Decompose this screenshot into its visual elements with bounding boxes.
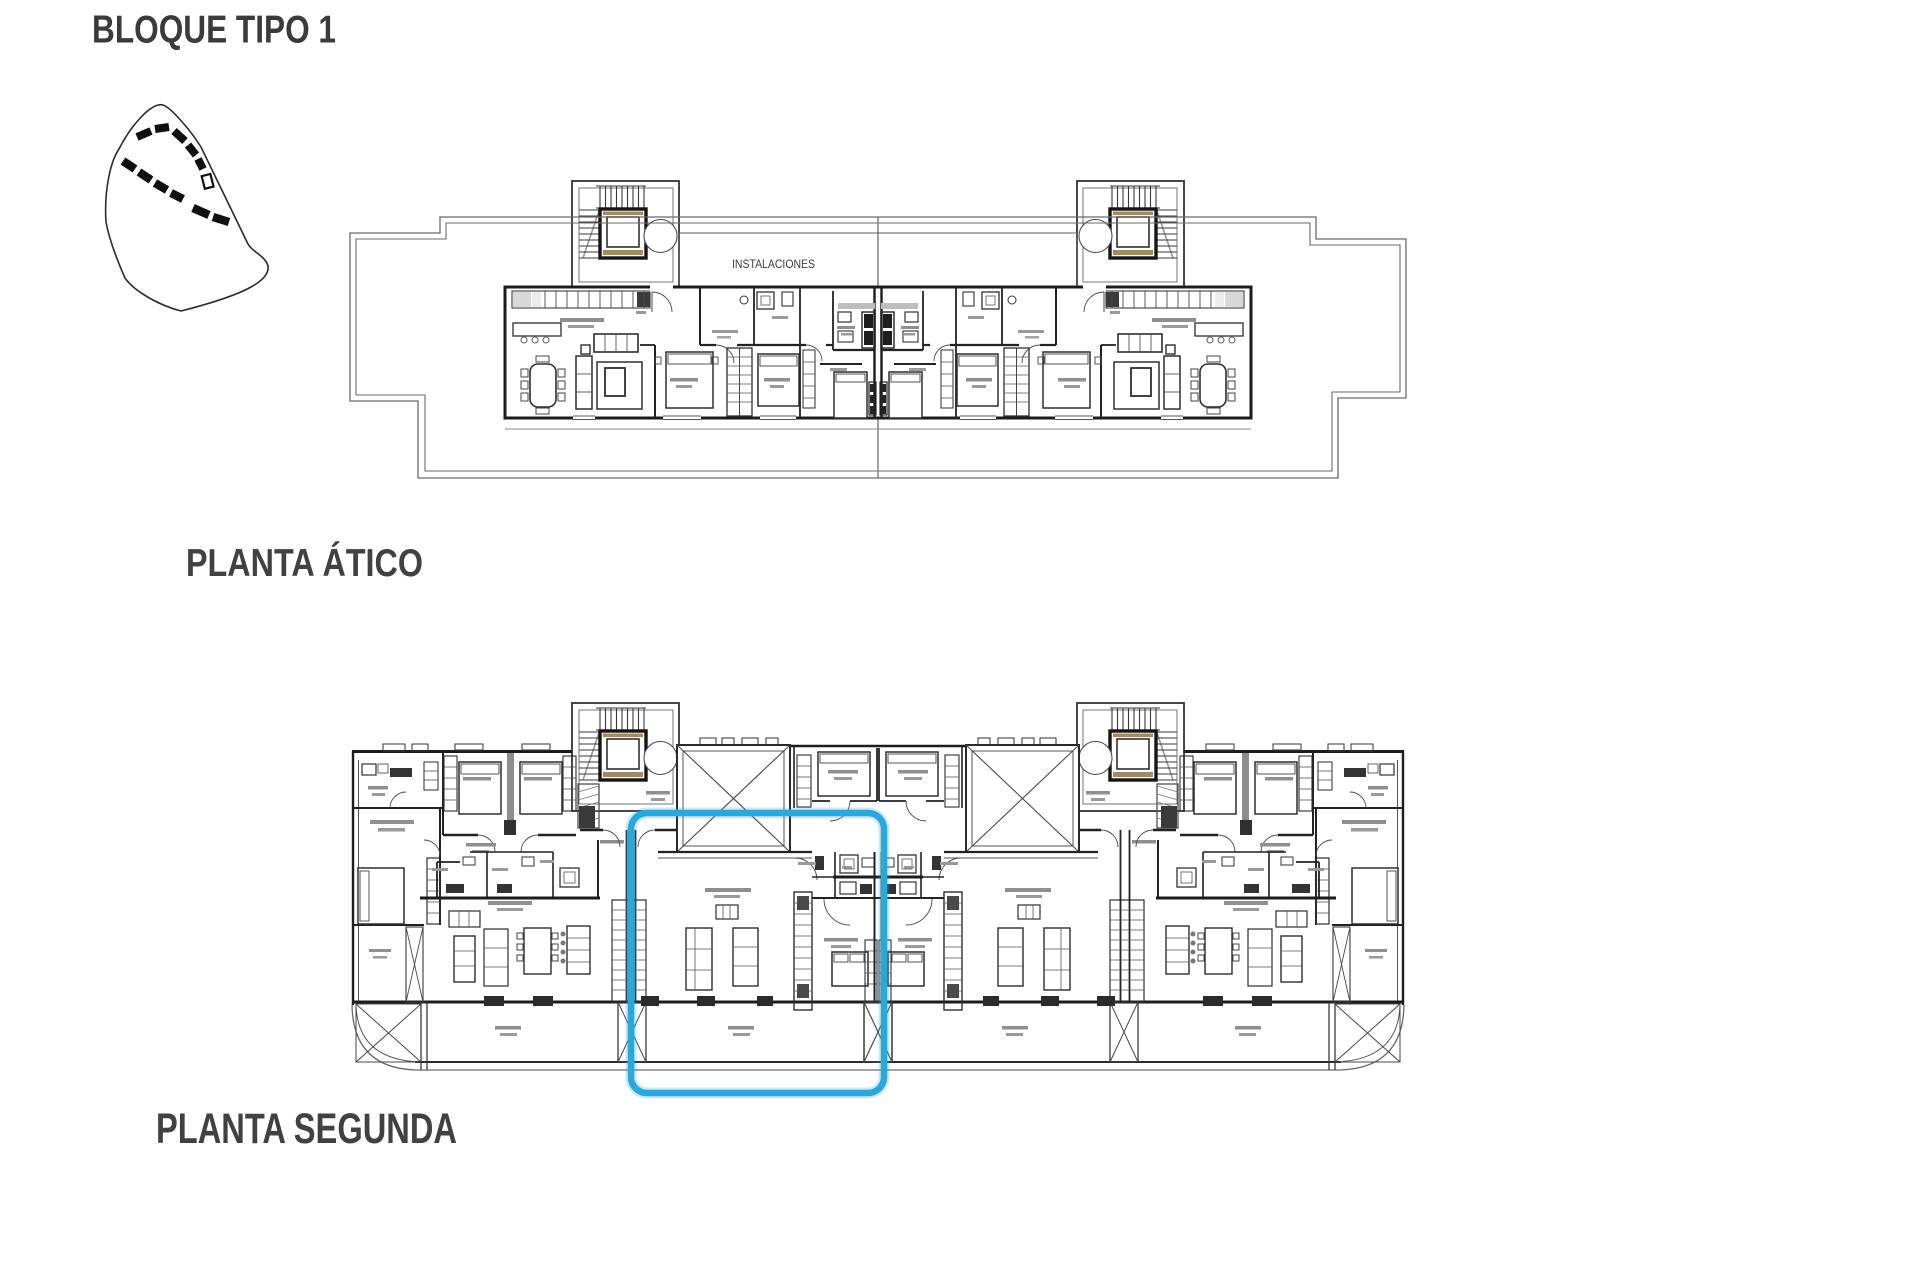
- svg-text:INSTALACIONES: INSTALACIONES: [732, 257, 815, 271]
- svg-text:BLOQUE TIPO 1: BLOQUE TIPO 1: [92, 9, 336, 52]
- svg-text:PLANTA SEGUNDA: PLANTA SEGUNDA: [156, 1106, 457, 1153]
- svg-text:PLANTA ÁTICO: PLANTA ÁTICO: [186, 541, 423, 585]
